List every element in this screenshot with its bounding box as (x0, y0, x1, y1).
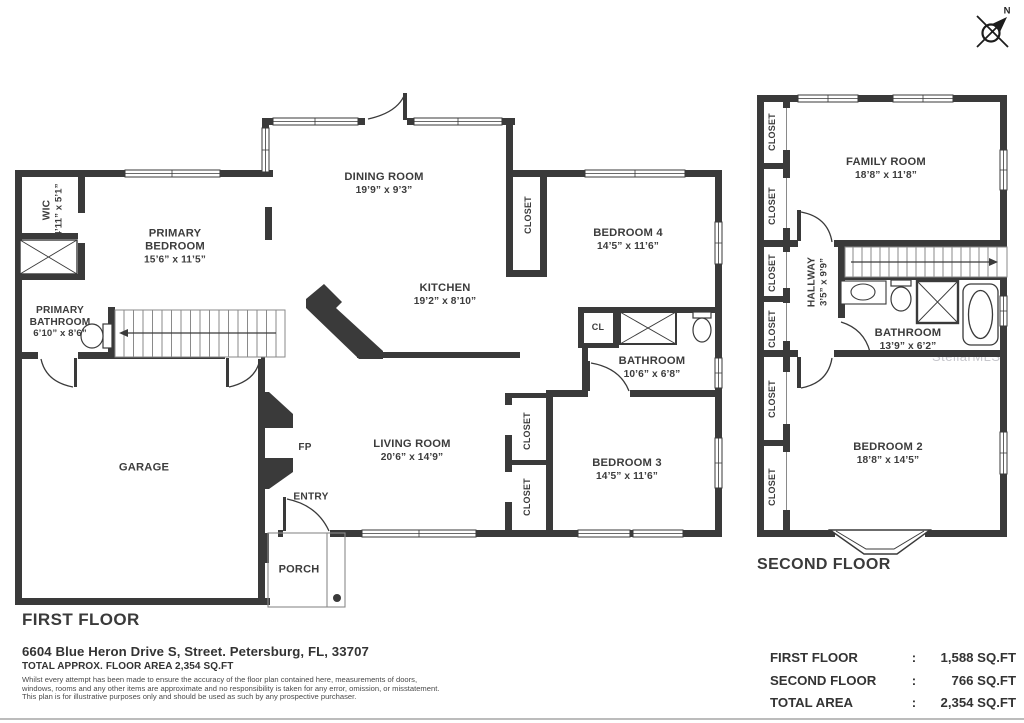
room-label-closet: CLOSET (523, 196, 533, 234)
second-floor-title: SECOND FLOOR (757, 556, 891, 574)
room-label-primary-bathroom: PRIMARY BATHROOM 6’10” x 8’6” (12, 305, 108, 340)
room-label-bedroom-4: BEDROOM 4 14’5” x 11’6” (558, 227, 698, 253)
summary-row: FIRST FLOOR : 1,588 SQ.FT (770, 650, 1016, 673)
stairs-first-floor (115, 310, 285, 357)
bottom-divider (0, 718, 1024, 720)
room-label-closet: CLOSET (522, 412, 532, 450)
shower-icon (620, 312, 676, 344)
room-label-living-room: LIVING ROOM 20’6” x 14’9” (337, 438, 487, 464)
shower-icon (917, 281, 958, 323)
room-label-closet: CLOSET (767, 380, 777, 418)
floor-plan-page: StellarMLS (0, 0, 1024, 723)
summary-value: 766 SQ.FT (920, 673, 1016, 688)
bay-window (830, 530, 930, 554)
room-label-dining-room: DINING ROOM 19’9” x 9’3” (314, 171, 454, 197)
room-label-kitchen: KITCHEN 19’2” x 8’10” (375, 282, 515, 308)
kitchen-counter (306, 284, 383, 359)
room-label-bathroom-1: BATHROOM 10’6” x 6’8” (582, 355, 722, 381)
footer: 6604 Blue Heron Drive S, Street. Petersb… (22, 644, 439, 702)
toilet-icon (891, 280, 911, 311)
summary-row: SECOND FLOOR : 766 SQ.FT (770, 673, 1016, 696)
room-label-closet: CLOSET (767, 254, 777, 292)
room-label-closet: CLOSET (767, 187, 777, 225)
room-label-fp: FP (298, 443, 311, 453)
stairs-second-floor (845, 247, 1007, 277)
property-address: 6604 Blue Heron Drive S, Street. Petersb… (22, 644, 439, 659)
room-label-cl: CL (592, 322, 604, 332)
room-label-closet: CLOSET (767, 113, 777, 151)
room-label-wic: WIC 4’11” x 5’1” (42, 184, 65, 237)
compass-north-label: N (1004, 6, 1011, 17)
room-label-hallway: HALLWAY 3’5” x 9’9” (807, 257, 830, 307)
total-area-line: TOTAL APPROX. FLOOR AREA 2,354 SQ.FT (22, 661, 439, 672)
room-label-closet: CLOSET (522, 478, 532, 516)
room-label-closet: CLOSET (767, 468, 777, 506)
disclaimer: Whilst every attempt has been made to en… (22, 676, 439, 702)
summary-separator: : (908, 673, 920, 688)
summary-row: TOTAL AREA : 2,354 SQ.FT (770, 695, 1016, 718)
room-label-bathroom-2: BATHROOM 13’9” x 6’2” (843, 327, 973, 353)
summary-value: 1,588 SQ.FT (920, 650, 1016, 665)
summary-value: 2,354 SQ.FT (920, 695, 1016, 710)
room-label-primary-bedroom: PRIMARY BEDROOM 15’6” x 11’5” (132, 228, 218, 267)
disclaimer-line-3: This plan is for illustrative purposes o… (22, 693, 439, 702)
summary-separator: : (908, 650, 920, 665)
room-label-entry: ENTRY (293, 491, 328, 504)
floor-plan-geometry (0, 0, 1024, 723)
shower-icon (20, 240, 77, 274)
room-label-garage: GARAGE (94, 462, 194, 475)
summary-label: TOTAL AREA (770, 695, 908, 710)
summary-label: SECOND FLOOR (770, 673, 908, 688)
fireplace (262, 458, 293, 489)
room-label-closet: CLOSET (767, 310, 777, 348)
room-label-family-room: FAMILY ROOM 18’8” x 11’8” (811, 156, 961, 182)
toilet-icon (693, 312, 711, 342)
room-label-bedroom-3: BEDROOM 3 14’5” x 11’6” (557, 457, 697, 483)
summary-separator: : (908, 695, 920, 710)
compass-icon (977, 16, 1008, 47)
summary-label: FIRST FLOOR (770, 650, 908, 665)
room-label-porch: PORCH (279, 564, 320, 577)
first-floor-title: FIRST FLOOR (22, 610, 140, 630)
fireplace (262, 392, 293, 428)
sink-icon (841, 281, 886, 304)
room-label-bedroom-2: BEDROOM 2 18’8” x 14’5” (813, 441, 963, 467)
area-summary: FIRST FLOOR : 1,588 SQ.FT SECOND FLOOR :… (770, 650, 1016, 718)
